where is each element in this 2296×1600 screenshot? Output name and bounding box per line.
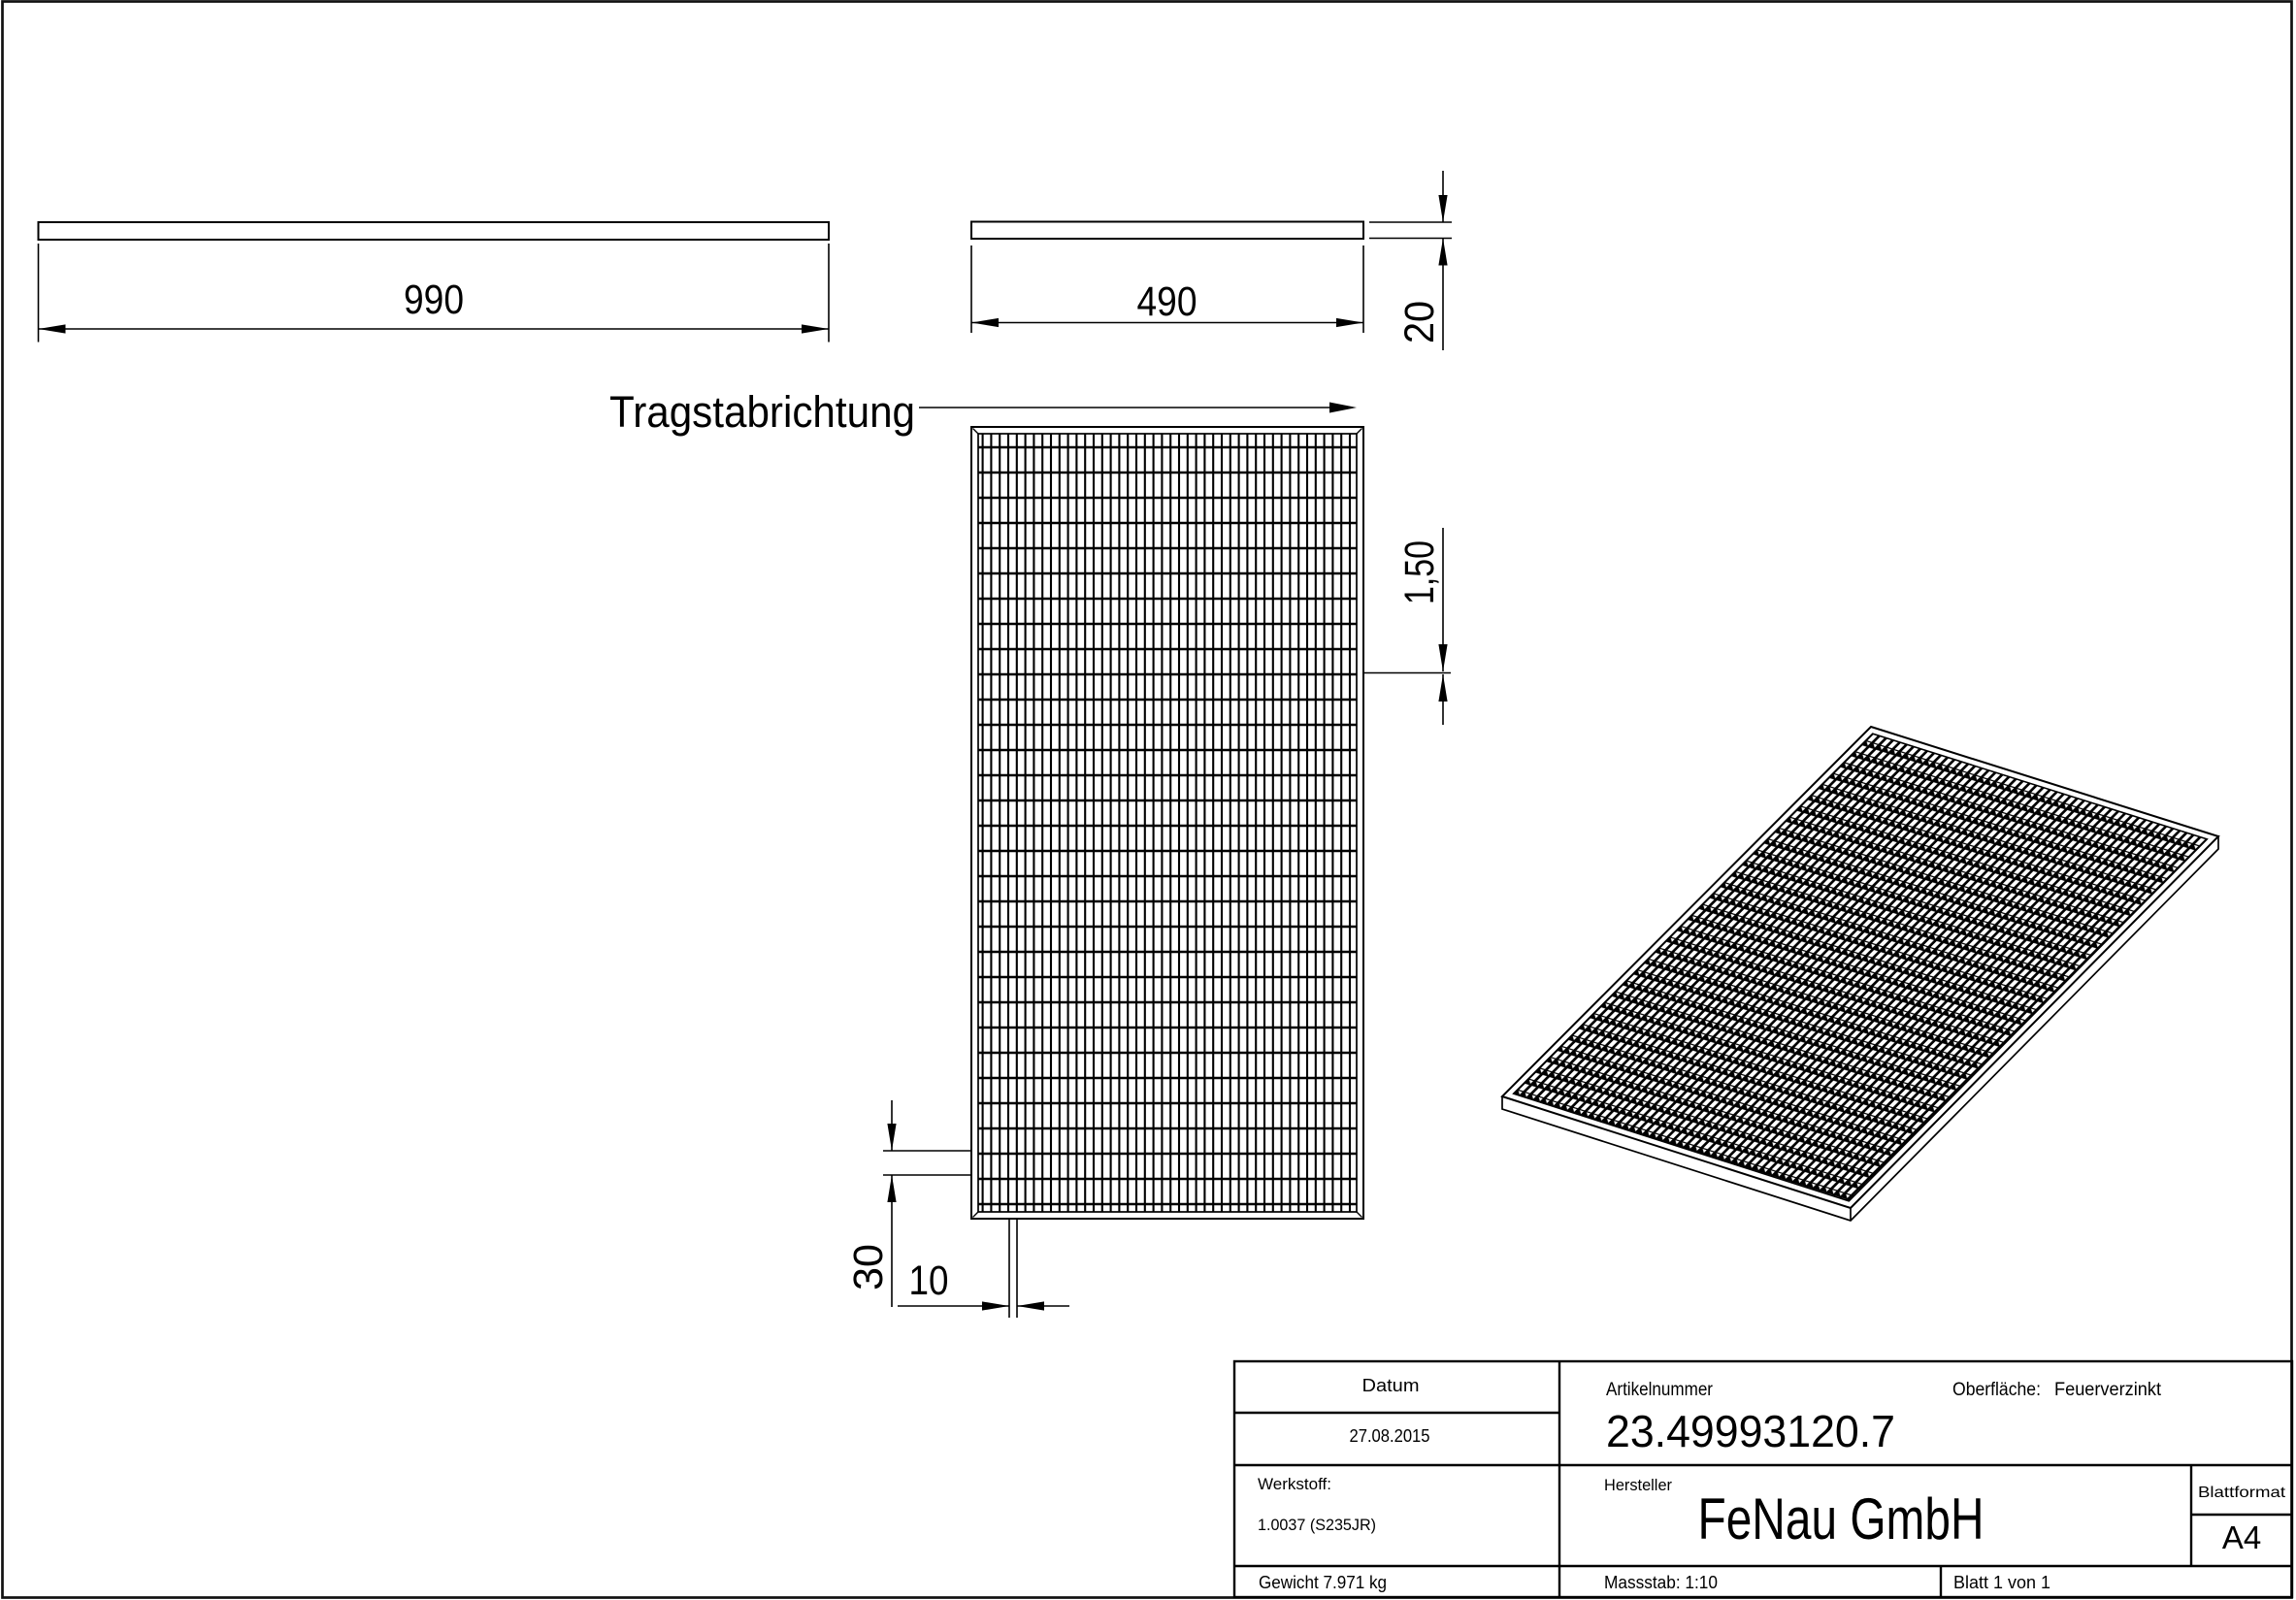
svg-text:Artikelnummer: Artikelnummer bbox=[1606, 1380, 1714, 1400]
svg-text:Feuerverzinkt: Feuerverzinkt bbox=[2054, 1380, 2162, 1400]
svg-text:A4: A4 bbox=[2222, 1519, 2261, 1555]
svg-text:FeNau GmbH: FeNau GmbH bbox=[1698, 1486, 1984, 1551]
svg-text:1,50: 1,50 bbox=[1396, 540, 1443, 604]
svg-text:1.0037 (S235JR): 1.0037 (S235JR) bbox=[1258, 1516, 1376, 1534]
svg-text:Tragstabrichtung: Tragstabrichtung bbox=[609, 387, 915, 437]
svg-text:Werkstoff:: Werkstoff: bbox=[1258, 1475, 1331, 1493]
svg-text:990: 990 bbox=[404, 277, 464, 323]
svg-text:Blattformat: Blattformat bbox=[2198, 1485, 2286, 1501]
svg-text:23.49993120.7: 23.49993120.7 bbox=[1606, 1406, 1895, 1456]
svg-text:490: 490 bbox=[1137, 278, 1197, 325]
svg-text:Hersteller: Hersteller bbox=[1604, 1476, 1672, 1494]
svg-text:Blatt 1 von 1: Blatt 1 von 1 bbox=[1953, 1573, 2050, 1592]
svg-text:Massstab: 1:10: Massstab: 1:10 bbox=[1604, 1573, 1718, 1592]
svg-text:Datum: Datum bbox=[1362, 1376, 1420, 1395]
svg-text:27.08.2015: 27.08.2015 bbox=[1350, 1426, 1430, 1446]
svg-text:Oberfläche:: Oberfläche: bbox=[1952, 1380, 2041, 1400]
svg-text:10: 10 bbox=[909, 1257, 949, 1304]
svg-text:Gewicht 7.971 kg: Gewicht 7.971 kg bbox=[1259, 1573, 1387, 1592]
svg-text:30: 30 bbox=[845, 1244, 892, 1290]
svg-text:20: 20 bbox=[1396, 301, 1443, 343]
